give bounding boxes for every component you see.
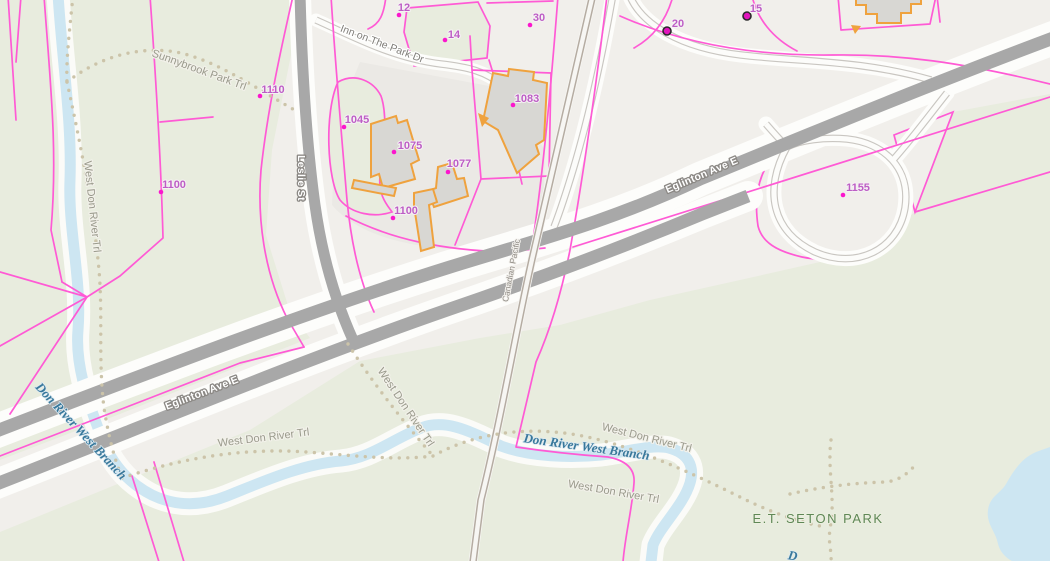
address-label-14: 14: [448, 29, 461, 41]
address-label-12: 12: [398, 2, 410, 14]
address-label-1100-building: 1100: [394, 205, 418, 217]
address-label-15: 15: [750, 3, 762, 15]
address-dot-1075: [392, 150, 397, 155]
address-label-30: 30: [533, 12, 545, 24]
map-viewport[interactable]: Eglinton Ave E Eglinton Ave E Leslie St …: [0, 0, 1050, 561]
address-label-1083: 1083: [515, 93, 539, 105]
address-label-1045: 1045: [345, 114, 369, 126]
address-dot-20: [663, 27, 671, 35]
address-label-1075: 1075: [398, 140, 422, 152]
park-label-et-seton: E.T. SETON PARK: [752, 511, 883, 526]
address-label-1077: 1077: [447, 158, 471, 170]
address-label-1155: 1155: [846, 182, 870, 194]
address-dot-1155: [841, 193, 846, 198]
address-label-1110: 1110: [261, 84, 284, 96]
street-label-leslie: Leslie St: [295, 155, 307, 201]
address-label-20: 20: [672, 18, 684, 30]
address-dot-14: [443, 38, 448, 43]
address-dot-1077: [446, 170, 451, 175]
address-label-1100-west: 1100: [162, 179, 186, 191]
address-dot-30: [528, 23, 533, 28]
